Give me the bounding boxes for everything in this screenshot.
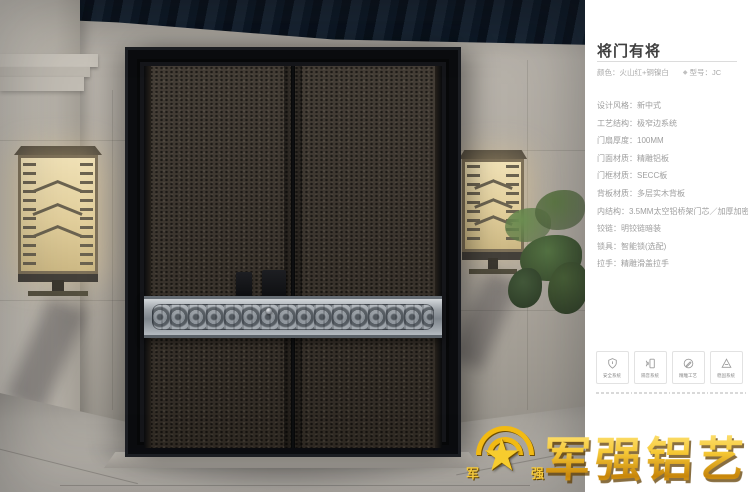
spec-hinge: 铰链：明铰链暗装 (597, 220, 748, 238)
band-carving-pattern (152, 304, 434, 330)
plant-leaves (508, 268, 542, 308)
pillar-capital (0, 54, 98, 67)
door-leaf-edge (144, 66, 151, 448)
badge-captions (596, 388, 746, 394)
brand-emblem: ★ 军 强 (468, 422, 544, 488)
lantern-cap (14, 146, 102, 155)
badge-caption-microtext (634, 392, 670, 394)
badge-label: 精雕工艺 (679, 372, 697, 378)
lantern-chevron (475, 183, 511, 195)
badge-label: 稳固系统 (717, 372, 735, 378)
wall-lantern-left (18, 146, 98, 296)
door-center-gap (291, 66, 295, 448)
lantern-shelf (28, 291, 89, 296)
star-icon: ★ (482, 434, 521, 478)
spec-handle: 拉手：精雕滑盖拉手 (597, 255, 748, 273)
lantern-cap (459, 150, 527, 159)
lantern-chevron (34, 185, 81, 197)
model-text: 型号：JC (690, 67, 722, 78)
lantern-chevron (34, 230, 81, 242)
door-threshold (104, 452, 480, 468)
wall-joint (0, 300, 128, 301)
badge-engraving: 精雕工艺 (672, 351, 705, 384)
lantern-chevron (475, 202, 511, 214)
spec-list: 设计风格：新中式 工艺结构：极窄边系统 门扇厚度：100MM 门面材质：精雕铝板… (597, 97, 748, 273)
badge-soundproof: 隔音系统 (634, 351, 667, 384)
product-title: 将门有将 (597, 40, 661, 61)
badge-caption-microtext (596, 392, 632, 394)
carved-silver-band (144, 296, 442, 338)
spec-frame-material: 门框材质：SECC板 (597, 167, 748, 185)
door-leaf-edge (435, 66, 442, 448)
brand-name: 军强铝艺 (542, 421, 748, 490)
wall-joint (112, 90, 113, 410)
lantern-body (18, 155, 98, 274)
spec-back-material: 背板材质：多层实木背板 (597, 185, 748, 203)
lantern-chevron (34, 208, 81, 220)
shield-icon (606, 357, 619, 370)
badge-label: 隔音系统 (641, 372, 659, 378)
spec-lock: 锁具：智能锁(选配) (597, 238, 748, 256)
soundproof-icon (644, 357, 657, 370)
badge-label: 安全系统 (603, 372, 621, 378)
badge-stability: 稳固系统 (710, 351, 743, 384)
door-leaves[interactable] (144, 66, 442, 448)
door-scene-photo (0, 0, 585, 492)
spec-leaf-thickness: 门扇厚度：100MM (597, 132, 748, 150)
color-model-row: 颜色：火山红+铜镍白 ◆ 型号：JC (597, 67, 748, 78)
model-diamond-icon: ◆ (683, 69, 688, 76)
badge-caption-microtext (710, 392, 746, 394)
plant-leaves (535, 190, 585, 230)
feature-badges: 安全系统 隔音系统 精雕工艺 (596, 351, 743, 384)
wall-joint (0, 140, 128, 141)
door-frame (128, 50, 458, 454)
title-divider (597, 61, 737, 62)
product-page: 将门有将 颜色：火山红+铜镍白 ◆ 型号：JC 设计风格：新中式 工艺结构：极窄… (0, 0, 748, 492)
spec-face-material: 门面材质：精雕铝板 (597, 150, 748, 168)
pillar-capital (0, 77, 84, 91)
stability-icon (720, 357, 733, 370)
color-value: 颜色：火山红+铜镍白 (597, 67, 669, 78)
pillar-capital (0, 67, 90, 77)
floor-joint (60, 485, 530, 486)
emblem-char-left: 军 (466, 463, 479, 482)
brand-logo: ★ 军 强 军强铝艺 (468, 420, 748, 490)
badge-safety: 安全系统 (596, 351, 629, 384)
product-info-panel: 将门有将 颜色：火山红+铜镍白 ◆ 型号：JC 设计风格：新中式 工艺结构：极窄… (585, 0, 748, 492)
badge-caption-microtext (672, 392, 708, 394)
spec-design-style: 设计风格：新中式 (597, 97, 748, 115)
lock-knob[interactable] (266, 308, 272, 314)
model-value: ◆ 型号：JC (683, 67, 721, 78)
engrave-icon (682, 357, 695, 370)
spec-craft-structure: 工艺结构：极窄边系统 (597, 115, 748, 133)
spec-inner-structure: 内结构：3.5MM太空铝桥架门芯／加厚加密航空铝板 (597, 203, 748, 221)
